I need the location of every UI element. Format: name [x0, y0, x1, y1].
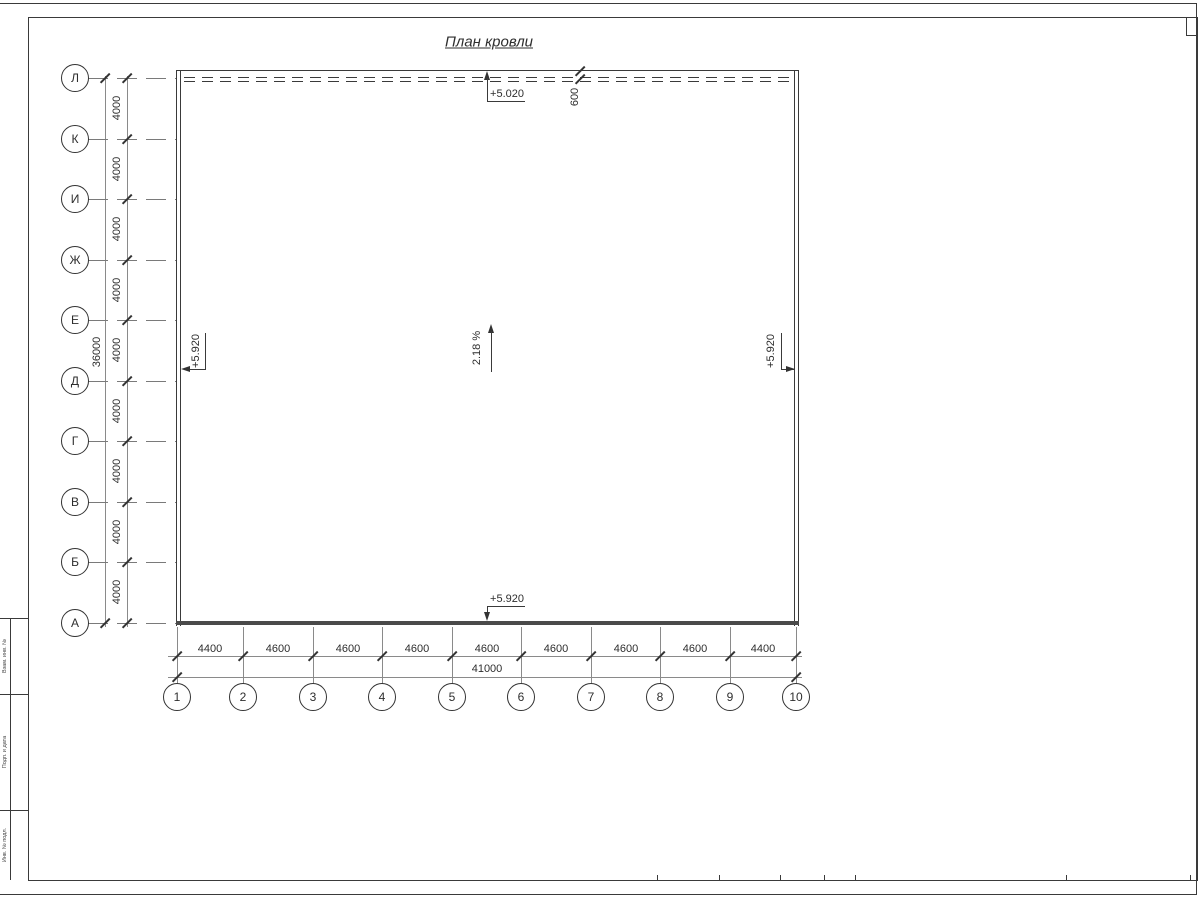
col-dim-label: 4600 — [336, 643, 360, 655]
elevation-shelf — [487, 606, 525, 607]
col-axis-label: 3 — [310, 690, 317, 704]
row-dim-label: 4000 — [111, 520, 123, 544]
col-dim-label: 4600 — [405, 643, 429, 655]
col-axis-label: 5 — [449, 690, 456, 704]
elevation-label-right: +5.920 — [765, 334, 777, 368]
dim-line-col-total — [168, 677, 802, 678]
row-axis-bubble: В — [61, 488, 89, 516]
row-axis-label: Д — [71, 374, 79, 388]
wall-right — [794, 70, 799, 626]
row-axis-bubble: Б — [61, 548, 89, 576]
elevation-shelf — [487, 101, 525, 102]
row-axis-label: К — [72, 132, 79, 146]
col-dim-label: 4600 — [475, 643, 499, 655]
col-axis-label: 8 — [657, 690, 664, 704]
row-dim-label: 4000 — [111, 399, 123, 423]
col-dim-label: 4600 — [614, 643, 638, 655]
col-axis-label: 6 — [518, 690, 525, 704]
slope-label: 2.18 % — [471, 331, 483, 365]
col-axis-bubble: 2 — [229, 683, 257, 711]
title-block-tick — [719, 875, 720, 880]
row-total-dim-label: 36000 — [91, 337, 103, 368]
eave-dashed-line — [184, 81, 792, 82]
col-dim-label: 4600 — [683, 643, 707, 655]
row-axis-line — [88, 562, 176, 563]
row-dim-label: 4000 — [111, 580, 123, 604]
col-axis-label: 2 — [240, 690, 247, 704]
elevation-shelf — [205, 333, 206, 370]
side-stamp-label: Взам. инв. № — [2, 639, 8, 673]
drawing-title: План кровли — [445, 34, 533, 51]
row-axis-line — [88, 260, 176, 261]
title-block-tick — [1066, 875, 1067, 880]
dim-line-rows — [127, 76, 128, 627]
row-axis-bubble: Е — [61, 306, 89, 334]
side-stamp-line — [0, 810, 28, 811]
elevation-label-top: +5.020 — [490, 88, 524, 100]
roof-edge-bottom — [176, 621, 799, 625]
col-dim-label: 4400 — [198, 643, 222, 655]
col-dim-label: 4600 — [266, 643, 290, 655]
eave-offset-label: 600 — [569, 88, 581, 106]
elevation-arrow-down-icon — [484, 612, 490, 621]
col-axis-bubble: 7 — [577, 683, 605, 711]
side-stamp-label: Инв. № подл. — [2, 828, 8, 862]
drawing-sheet: Взам. инв. № Подп. и дата Инв. № подл. П… — [0, 0, 1200, 900]
col-dim-label: 4600 — [544, 643, 568, 655]
inner-frame — [28, 17, 1198, 881]
row-dim-label: 4000 — [111, 338, 123, 362]
row-dim-label: 4000 — [111, 157, 123, 181]
row-axis-line — [88, 139, 176, 140]
row-axis-label: Г — [72, 434, 79, 448]
row-dim-label: 4000 — [111, 459, 123, 483]
col-axis-label: 1 — [174, 690, 181, 704]
wall-left — [176, 70, 181, 626]
elevation-label-left: +5.920 — [190, 334, 202, 368]
slope-arrow-line — [491, 331, 492, 372]
dim-line-row-total — [105, 76, 106, 627]
title-block-tick — [1190, 875, 1191, 880]
row-axis-label: Л — [71, 71, 79, 85]
dim-line-cols — [168, 656, 802, 657]
elevation-arrow-left-icon — [181, 366, 190, 372]
col-axis-bubble: 9 — [716, 683, 744, 711]
row-dim-label: 4000 — [111, 96, 123, 120]
row-axis-label: Ж — [69, 253, 80, 267]
row-axis-bubble: К — [61, 125, 89, 153]
row-axis-line — [88, 199, 176, 200]
row-axis-bubble: И — [61, 185, 89, 213]
row-axis-bubble: Г — [61, 427, 89, 455]
row-axis-bubble: Д — [61, 367, 89, 395]
col-axis-bubble: 6 — [507, 683, 535, 711]
col-axis-label: 4 — [379, 690, 386, 704]
row-axis-label: Б — [71, 555, 79, 569]
col-axis-bubble: 8 — [646, 683, 674, 711]
row-dim-label: 4000 — [111, 217, 123, 241]
col-axis-bubble: 4 — [368, 683, 396, 711]
title-block-tick — [824, 875, 825, 880]
row-axis-label: В — [71, 495, 79, 509]
col-axis-bubble: 5 — [438, 683, 466, 711]
row-axis-bubble: Л — [61, 64, 89, 92]
title-block-tick — [657, 875, 658, 880]
row-axis-line — [88, 502, 176, 503]
side-stamp-line — [0, 694, 28, 695]
col-total-dim-label: 41000 — [472, 663, 503, 675]
row-axis-line — [88, 441, 176, 442]
side-stamp-divider — [10, 618, 11, 880]
col-dim-label: 4400 — [751, 643, 775, 655]
elevation-arrow-right-icon — [786, 366, 795, 372]
row-axis-line — [88, 320, 176, 321]
col-axis-bubble: 10 — [782, 683, 810, 711]
col-axis-label: 7 — [588, 690, 595, 704]
row-axis-label: И — [71, 192, 80, 206]
col-axis-bubble: 1 — [163, 683, 191, 711]
frame-corner-box — [1186, 17, 1197, 36]
elevation-label-bottom: +5.920 — [490, 593, 524, 605]
row-axis-label: Е — [71, 313, 79, 327]
elevation-leader — [487, 78, 488, 102]
col-axis-label: 9 — [727, 690, 734, 704]
elevation-shelf — [781, 333, 782, 370]
row-axis-bubble: А — [61, 609, 89, 637]
title-block-tick — [780, 875, 781, 880]
side-stamp-line — [0, 618, 28, 619]
outer-border-bottom — [0, 894, 1197, 895]
title-block-tick — [855, 875, 856, 880]
col-axis-label: 10 — [789, 690, 802, 704]
row-axis-bubble: Ж — [61, 246, 89, 274]
side-stamp-label: Подп. и дата — [2, 736, 8, 768]
row-dim-label: 4000 — [111, 278, 123, 302]
row-axis-line — [88, 381, 176, 382]
col-axis-bubble: 3 — [299, 683, 327, 711]
row-axis-label: А — [71, 616, 79, 630]
outer-border-top — [0, 3, 1197, 4]
